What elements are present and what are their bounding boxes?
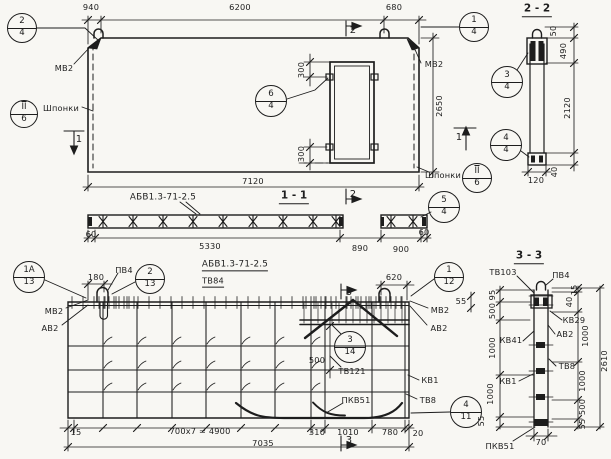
dim-6200: 6200 bbox=[229, 3, 251, 11]
dim-500-right: 500 bbox=[578, 399, 586, 415]
label-tv8-33: ТВ8 bbox=[559, 362, 575, 370]
dim-55-top: 55 bbox=[456, 297, 467, 305]
label-mv2-right: МВ2 bbox=[431, 306, 450, 314]
dim-60-left: 60 bbox=[86, 230, 97, 238]
marker-2-bottom: 2 bbox=[350, 190, 357, 200]
label-tv84: ТВ84 bbox=[202, 277, 224, 288]
marker-1-right: 1 bbox=[456, 133, 463, 143]
callout-6-4-denominator: 4 bbox=[256, 102, 286, 112]
callout-4-4-numerator: 4 bbox=[491, 134, 521, 145]
marker-2-top: 2 bbox=[350, 26, 357, 36]
label-tv103: ТВ103 bbox=[489, 268, 516, 276]
dim-900: 900 bbox=[393, 245, 409, 253]
callout-1-12: 112 bbox=[434, 262, 464, 292]
label-tv8: ТВ8 bbox=[420, 396, 436, 404]
callout-1-4-numerator: 1 bbox=[460, 16, 488, 27]
callout-4-4-denominator: 4 bbox=[491, 146, 521, 156]
callout-5-4: 54 bbox=[428, 191, 460, 223]
dim-40-right: 40 bbox=[565, 297, 573, 308]
callout-3-4-denominator: 4 bbox=[492, 83, 522, 93]
label-kv41: КВ41 bbox=[500, 336, 523, 344]
dim-310: 310 bbox=[309, 428, 325, 436]
drawing-sheet: 9406200680МВ2Шпонки12МВ23003002650Шпонки… bbox=[0, 0, 611, 459]
callout-sh-6-left-denominator: 6 bbox=[11, 115, 37, 125]
dim-55-left: 55 bbox=[477, 416, 485, 427]
dim-300-door-top: 300 bbox=[297, 62, 305, 78]
label-kv29: КВ29 bbox=[563, 316, 586, 324]
title-3-3: 3 - 3 bbox=[514, 250, 544, 264]
dim-490: 490 bbox=[559, 43, 567, 59]
callout-2-13: 213 bbox=[135, 264, 165, 294]
dim-890: 890 bbox=[352, 244, 368, 252]
callout-1-4-denominator: 4 bbox=[460, 28, 488, 38]
dim-780: 780 bbox=[382, 428, 398, 436]
title-1-1: 1 - 1 bbox=[279, 190, 309, 204]
callout-2-4-numerator: 2 bbox=[8, 17, 36, 28]
callout-1-4: 14 bbox=[459, 12, 489, 42]
dim-2120: 2120 bbox=[563, 97, 571, 119]
label-av2-33: АВ2 bbox=[556, 330, 573, 338]
label-mv2-top-right: МВ2 bbox=[425, 60, 444, 68]
callout-2-13-denominator: 13 bbox=[136, 280, 164, 290]
dim-60-right: 60 bbox=[419, 228, 430, 236]
dim-1000-left-2: 1000 bbox=[486, 383, 494, 405]
marker-3-top: 3 bbox=[346, 288, 353, 298]
dim-500-left: 500 bbox=[488, 303, 496, 319]
callout-3-4: 34 bbox=[491, 66, 523, 98]
callout-1-12-denominator: 12 bbox=[435, 278, 463, 288]
title-2-2: 2 - 2 bbox=[522, 3, 552, 17]
dim-500-inner: 500 bbox=[309, 356, 325, 364]
callout-2-4-denominator: 4 bbox=[8, 29, 36, 39]
callout-4-11-numerator: 4 bbox=[451, 401, 481, 412]
dim-120: 120 bbox=[528, 176, 544, 184]
marker-1-left: 1 bbox=[76, 135, 83, 145]
label-mv2-top-left: МВ2 bbox=[55, 64, 74, 72]
callout-sh-6-left: II6 bbox=[10, 100, 38, 128]
dim-20: 20 bbox=[413, 429, 424, 437]
dim-7120: 7120 bbox=[242, 177, 264, 185]
callout-1a-13: 1А13 bbox=[13, 261, 45, 293]
label-av2-left: АВ2 bbox=[41, 324, 58, 332]
label-pv4-left: ПВ4 bbox=[115, 266, 133, 274]
dim-2650: 2650 bbox=[435, 95, 443, 117]
dim-70: 70 bbox=[536, 438, 547, 446]
label-abv-top: АБВ1.3-71-2.5 bbox=[130, 194, 196, 203]
dim-7035: 7035 bbox=[252, 439, 274, 447]
dim-1000-right-2: 1000 bbox=[578, 370, 586, 392]
callout-3-14-numerator: 3 bbox=[335, 336, 365, 347]
dim-15-right: 15 bbox=[570, 285, 578, 296]
callout-1a-13-denominator: 13 bbox=[14, 278, 44, 288]
label-shponki-left: Шпонки bbox=[43, 104, 79, 112]
dim-40: 40 bbox=[550, 167, 558, 178]
label-abv-bottom: АБВ1.3-71-2.5 bbox=[202, 260, 268, 271]
dim-680: 680 bbox=[386, 3, 402, 11]
callout-6-4: 64 bbox=[255, 85, 287, 117]
dim-50: 50 bbox=[549, 26, 557, 37]
dim-5330: 5330 bbox=[199, 242, 221, 250]
callout-4-4: 44 bbox=[490, 129, 522, 161]
dim-700x7: 700x7 = 4900 bbox=[170, 427, 231, 435]
dim-95: 95 bbox=[488, 290, 496, 301]
label-shponki-right: Шпонки bbox=[425, 171, 461, 179]
dim-180: 180 bbox=[88, 273, 104, 281]
callout-sh-6-right: II6 bbox=[462, 163, 492, 193]
marker-3-bottom: 3 bbox=[346, 436, 353, 446]
label-pv4-33: ПВ4 bbox=[552, 271, 570, 279]
label-mv2-left: МВ2 bbox=[45, 307, 64, 315]
callout-6-4-numerator: 6 bbox=[256, 90, 286, 101]
dim-940: 940 bbox=[83, 3, 99, 11]
label-layer: 9406200680МВ2Шпонки12МВ23003002650Шпонки… bbox=[0, 0, 611, 459]
dim-1000-right-1: 1000 bbox=[581, 325, 589, 347]
label-pkv51-33: ПКВ51 bbox=[485, 442, 514, 450]
label-av2-right: АВ2 bbox=[430, 324, 447, 332]
dim-2610: 2610 bbox=[600, 350, 608, 372]
dim-15: 15 bbox=[71, 428, 82, 436]
callout-2-13-numerator: 2 bbox=[136, 268, 164, 279]
callout-1-12-numerator: 1 bbox=[435, 266, 463, 277]
label-pkv51: ПКВ51 bbox=[341, 396, 370, 404]
callout-sh-6-right-numerator: II bbox=[463, 167, 491, 178]
callout-3-14: 314 bbox=[334, 331, 366, 363]
callout-sh-6-right-denominator: 6 bbox=[463, 179, 491, 189]
callout-3-4-numerator: 3 bbox=[492, 71, 522, 82]
callout-5-4-numerator: 5 bbox=[429, 196, 459, 207]
label-kv1-33: КВ1 bbox=[499, 377, 516, 385]
callout-sh-6-left-numerator: II bbox=[11, 103, 37, 114]
callout-3-14-denominator: 14 bbox=[335, 348, 365, 358]
label-kv1: КВ1 bbox=[421, 376, 438, 384]
dim-620: 620 bbox=[386, 273, 402, 281]
callout-1a-13-numerator: 1А bbox=[14, 266, 44, 277]
dim-1000-left-1: 1000 bbox=[488, 337, 496, 359]
callout-2-4: 24 bbox=[7, 13, 37, 43]
dim-55-right: 55 bbox=[578, 419, 586, 430]
callout-5-4-denominator: 4 bbox=[429, 208, 459, 218]
dim-300-door-bottom: 300 bbox=[297, 146, 305, 162]
label-tv121: ТВ121 bbox=[338, 367, 365, 375]
